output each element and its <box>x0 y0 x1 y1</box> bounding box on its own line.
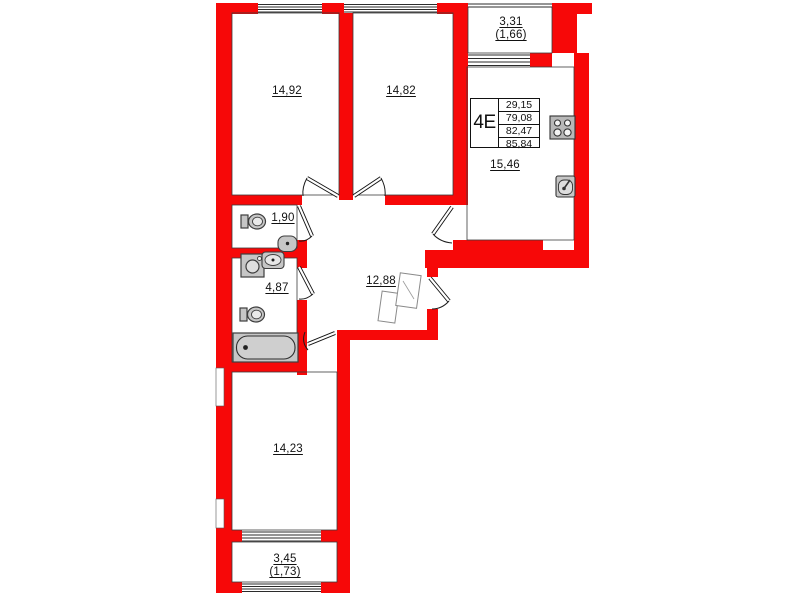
room-area-wc: 1,90 <box>251 212 315 224</box>
window-balcony-bottom <box>242 584 321 592</box>
door-bedroom3 <box>304 332 335 350</box>
door-bedroom1 <box>303 178 338 196</box>
room-area-bedroom3: 14,23 <box>256 443 320 455</box>
floor-plan: 14,92 14,82 3,31 (1,66) 15,46 1,90 4,87 … <box>0 0 800 600</box>
room-area-bathroom: 4,87 <box>245 282 309 294</box>
stove-icon <box>550 116 575 139</box>
room-area-balcony-top-reduced: (1,66) <box>479 29 543 41</box>
unit-area-living: 29,15 <box>499 99 539 112</box>
room-area-bedroom2: 14,82 <box>369 85 433 97</box>
room-area-kitchen: 15,46 <box>473 159 537 171</box>
corner-sink-icon <box>278 236 297 252</box>
sink-icon <box>262 252 284 269</box>
unit-type-label: 4E <box>471 99 499 147</box>
washing-machine-icon <box>241 254 264 277</box>
room-area-balcony-bottom: 3,45 <box>253 553 317 565</box>
room-area-hallway: 12,88 <box>349 275 413 287</box>
bathtub-icon <box>233 333 298 362</box>
window-bedroom3-balcony <box>242 532 321 541</box>
kitchen-sink-icon <box>556 176 575 197</box>
door-kitchen <box>433 207 452 243</box>
door-bedroom2 <box>354 178 385 196</box>
unit-info-table: 4E 29,15 79,08 82,47 85,84 <box>470 98 540 148</box>
room-area-bedroom1: 14,92 <box>255 85 319 97</box>
window-bedroom2 <box>344 5 437 13</box>
door-entry <box>430 278 449 309</box>
room-area-balcony-top: 3,31 <box>479 16 543 28</box>
window-kitchen <box>468 55 530 66</box>
unit-area-1: 79,08 <box>499 112 539 125</box>
room-area-balcony-bottom-reduced: (1,73) <box>253 566 317 578</box>
unit-area-rows: 29,15 79,08 82,47 85,84 <box>499 99 539 147</box>
unit-area-2: 82,47 <box>499 125 539 138</box>
window-bedroom1 <box>258 5 322 13</box>
unit-area-total: 85,84 <box>499 138 539 150</box>
toilet-icon <box>240 307 265 322</box>
balcony-top-rail <box>468 4 552 7</box>
